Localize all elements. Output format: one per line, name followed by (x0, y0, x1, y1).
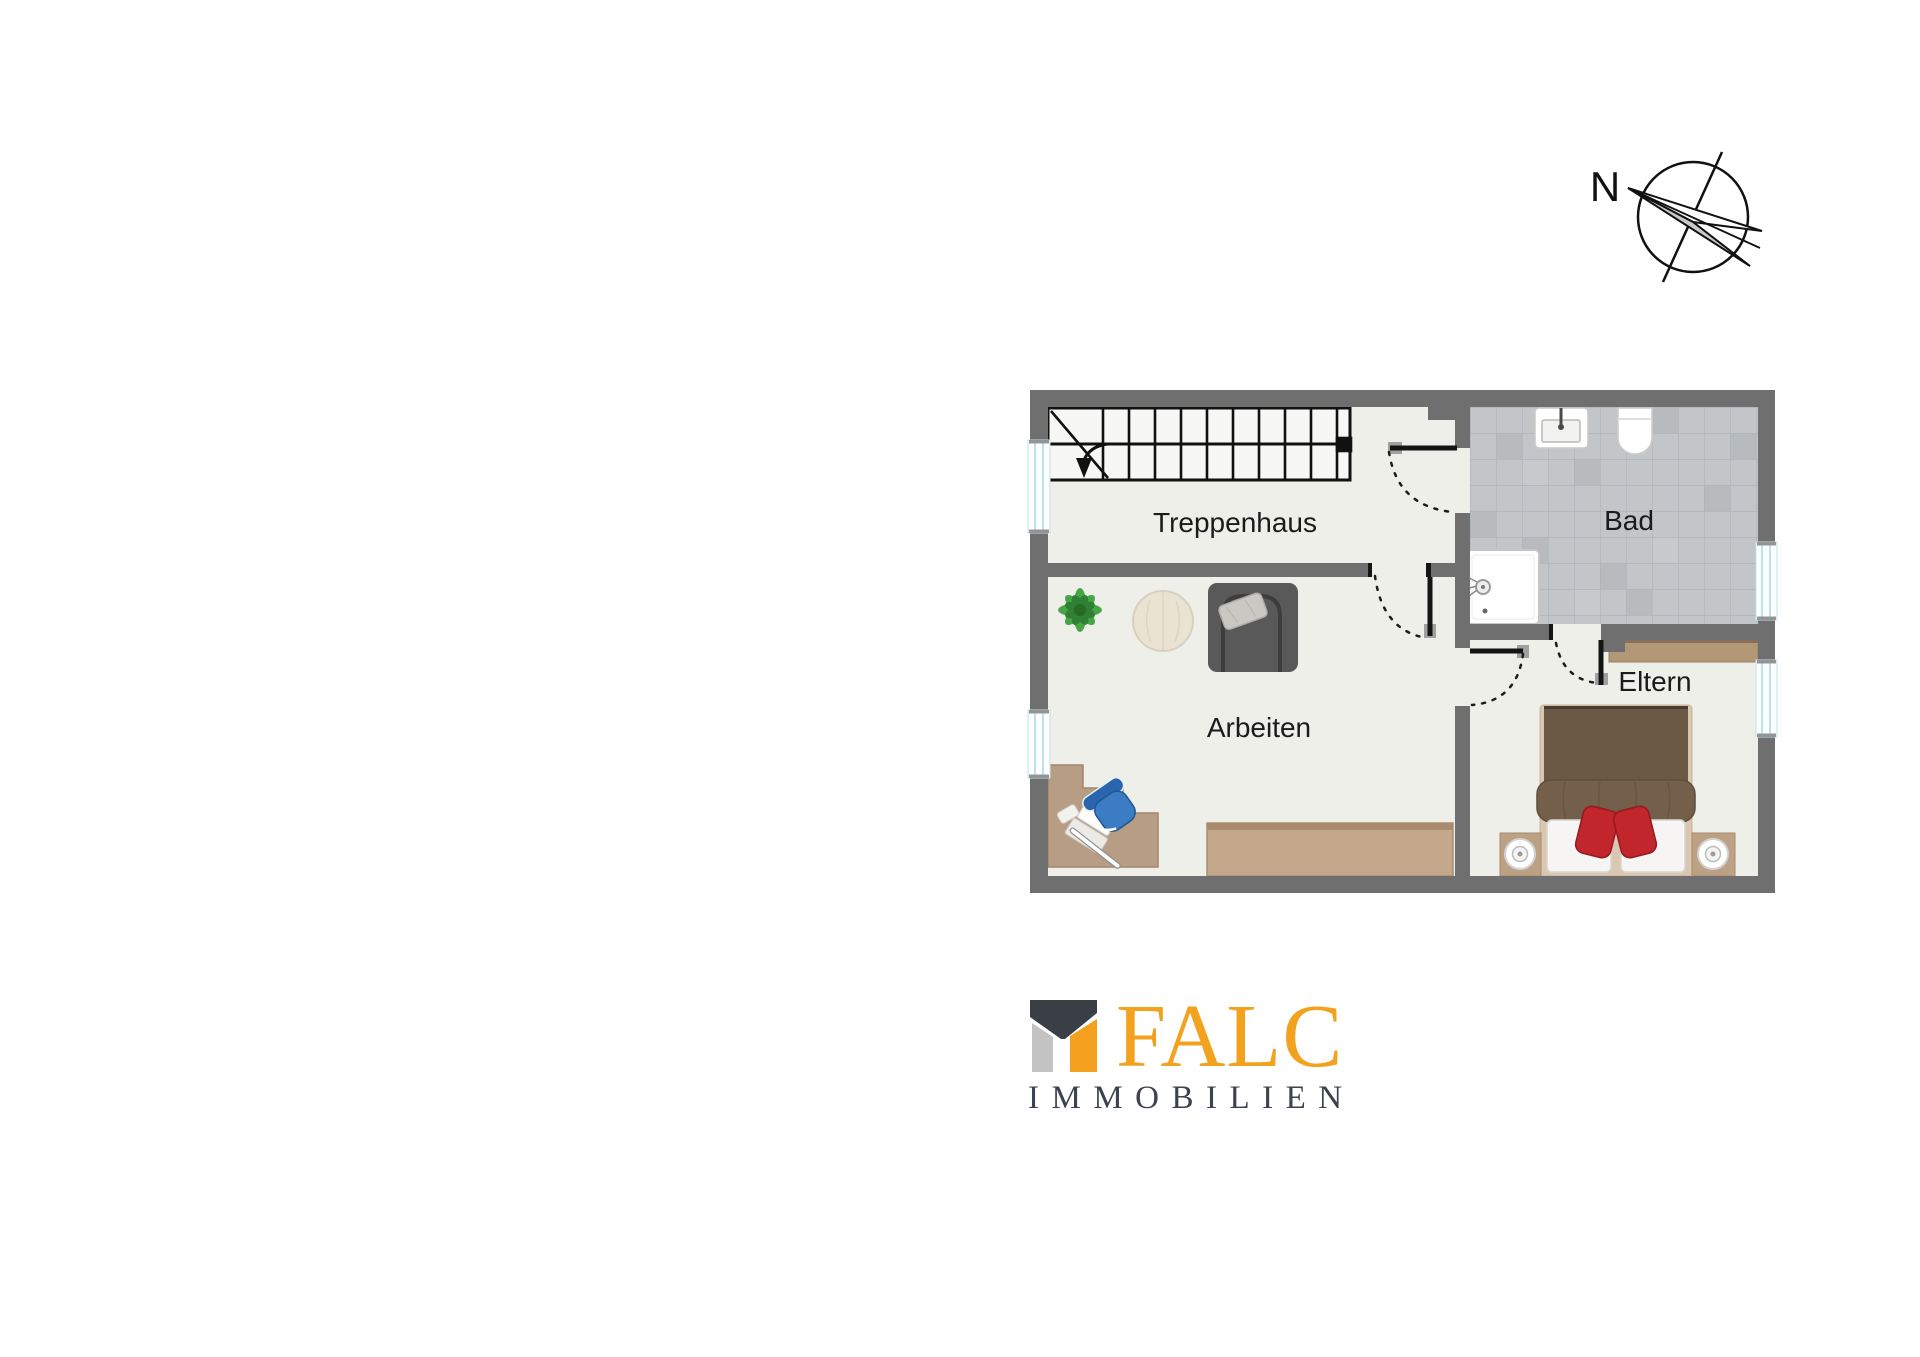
floor-plan: Treppenhaus Bad Arbeiten Eltern (1020, 380, 1800, 910)
compass-needle-midline (1628, 188, 1760, 248)
logo-brand-text: FALC (1116, 992, 1343, 1082)
window-arbeiten (1028, 710, 1050, 778)
falc-house-icon (1028, 998, 1100, 1076)
toilet-icon (1618, 408, 1652, 454)
room-label-bad: Bad (1604, 505, 1654, 536)
compass-rose-icon: N (1565, 125, 1815, 310)
double-bed (1537, 705, 1695, 876)
wall-treppenhaus-bottom (1048, 563, 1372, 577)
shower-icon (1467, 550, 1539, 624)
window-eltern (1756, 660, 1777, 737)
window-bad (1756, 542, 1777, 620)
logo-subtitle-text: IMMOBILIEN (1028, 1082, 1355, 1115)
wall-interior-vertical (1455, 706, 1470, 876)
wall-bath-bottom (1455, 624, 1553, 640)
staircase (1048, 408, 1351, 480)
wall-pier-eltern (1601, 624, 1625, 652)
compass-north-label: N (1590, 163, 1620, 210)
wall-pier-bath-door (1428, 405, 1470, 420)
wardrobe (1609, 637, 1758, 662)
armchair (1208, 583, 1298, 676)
sideboard (1207, 823, 1453, 876)
window-treppenhaus (1028, 440, 1050, 533)
nightstand-left (1500, 833, 1541, 876)
room-label-treppenhaus: Treppenhaus (1153, 507, 1317, 538)
wall-stub (1428, 563, 1455, 577)
nightstand-right (1692, 833, 1735, 876)
wall-right (1758, 390, 1775, 893)
wall-top (1030, 390, 1775, 407)
wall-interior-vertical (1455, 420, 1470, 448)
room-label-eltern: Eltern (1618, 666, 1691, 697)
wall-bottom (1030, 876, 1775, 893)
room-label-arbeiten: Arbeiten (1207, 712, 1311, 743)
page: N (0, 0, 1920, 1357)
falc-logo: FALC IMMOBILIEN (1026, 992, 1486, 1122)
sink-icon (1535, 408, 1588, 448)
side-table (1133, 591, 1193, 651)
